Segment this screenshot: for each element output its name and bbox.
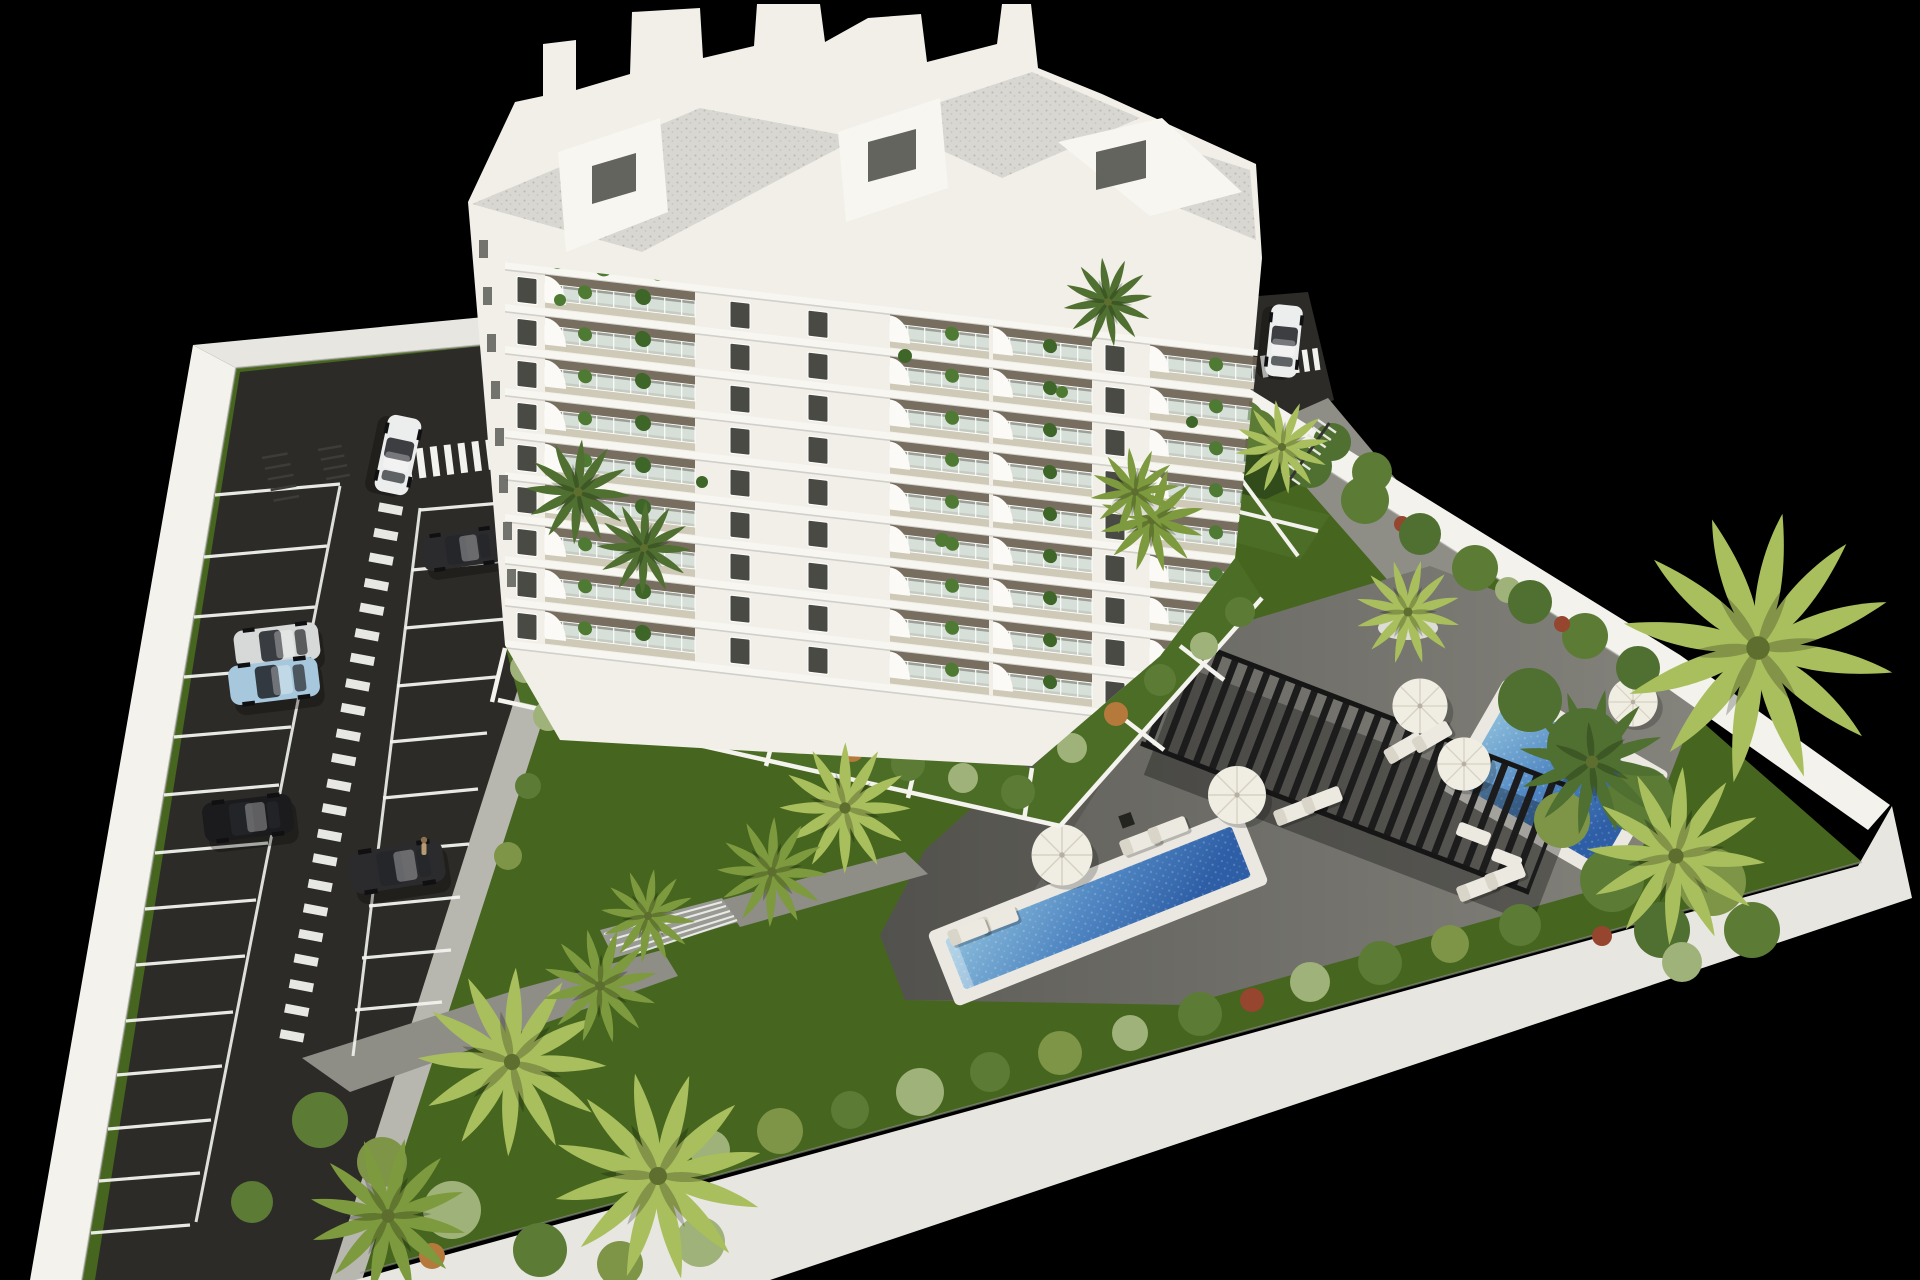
render-canvas: [0, 0, 1920, 1280]
apartment-building: [468, 4, 1262, 766]
white-car-rear-lane: [1256, 303, 1305, 382]
person-figure: [421, 837, 427, 855]
architectural-render: [0, 0, 1920, 1280]
